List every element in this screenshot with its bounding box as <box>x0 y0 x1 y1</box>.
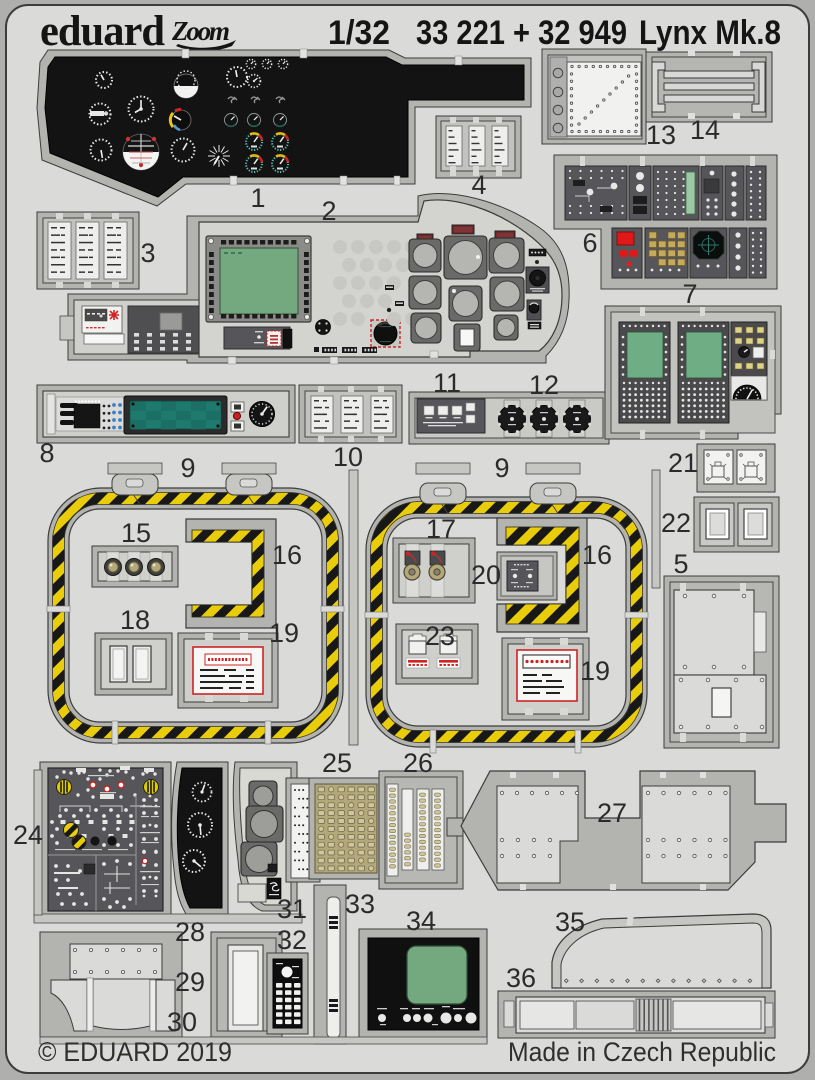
svg-text:13: 13 <box>646 120 676 150</box>
svg-text:33 221 + 32 949: 33 221 + 32 949 <box>416 14 627 52</box>
svg-text:7: 7 <box>682 279 697 309</box>
svg-text:Made in Czech Republic: Made in Czech Republic <box>508 1037 776 1067</box>
svg-text:19: 19 <box>269 618 299 648</box>
svg-text:21: 21 <box>668 448 698 478</box>
svg-text:9: 9 <box>180 453 195 483</box>
svg-text:15: 15 <box>121 518 151 548</box>
svg-text:24: 24 <box>13 820 43 850</box>
svg-text:Zoom: Zoom <box>171 16 230 46</box>
svg-text:eduard: eduard <box>40 8 165 55</box>
svg-text:33: 33 <box>345 889 375 919</box>
svg-text:8: 8 <box>39 438 54 468</box>
svg-text:© EDUARD 2019: © EDUARD 2019 <box>38 1037 232 1067</box>
svg-text:6: 6 <box>582 228 597 258</box>
svg-text:35: 35 <box>555 907 585 937</box>
svg-text:29: 29 <box>175 967 205 997</box>
svg-text:4: 4 <box>471 170 486 200</box>
svg-text:30: 30 <box>167 1007 197 1037</box>
svg-text:22: 22 <box>661 508 691 538</box>
svg-text:18: 18 <box>120 605 150 635</box>
svg-text:26: 26 <box>403 748 433 778</box>
svg-text:16: 16 <box>272 540 302 570</box>
svg-text:11: 11 <box>433 368 461 398</box>
svg-text:31: 31 <box>277 894 307 924</box>
svg-text:2: 2 <box>321 196 336 226</box>
svg-text:16: 16 <box>582 540 612 570</box>
svg-text:14: 14 <box>690 115 720 145</box>
svg-text:19: 19 <box>580 656 610 686</box>
svg-text:1/32: 1/32 <box>328 14 390 52</box>
svg-text:17: 17 <box>426 514 456 544</box>
svg-text:27: 27 <box>597 798 627 828</box>
svg-text:5: 5 <box>673 549 688 579</box>
svg-text:10: 10 <box>333 442 363 472</box>
svg-text:1: 1 <box>250 183 265 213</box>
svg-text:23: 23 <box>425 621 455 651</box>
svg-text:36: 36 <box>506 963 536 993</box>
svg-text:9: 9 <box>494 453 509 483</box>
svg-text:28: 28 <box>175 917 205 947</box>
svg-text:25: 25 <box>322 748 352 778</box>
svg-text:32: 32 <box>277 925 307 955</box>
svg-text:20: 20 <box>471 560 501 590</box>
svg-text:34: 34 <box>406 906 436 936</box>
svg-text:12: 12 <box>529 370 559 400</box>
svg-text:Lynx Mk.8: Lynx Mk.8 <box>639 14 781 52</box>
svg-text:3: 3 <box>140 238 155 268</box>
